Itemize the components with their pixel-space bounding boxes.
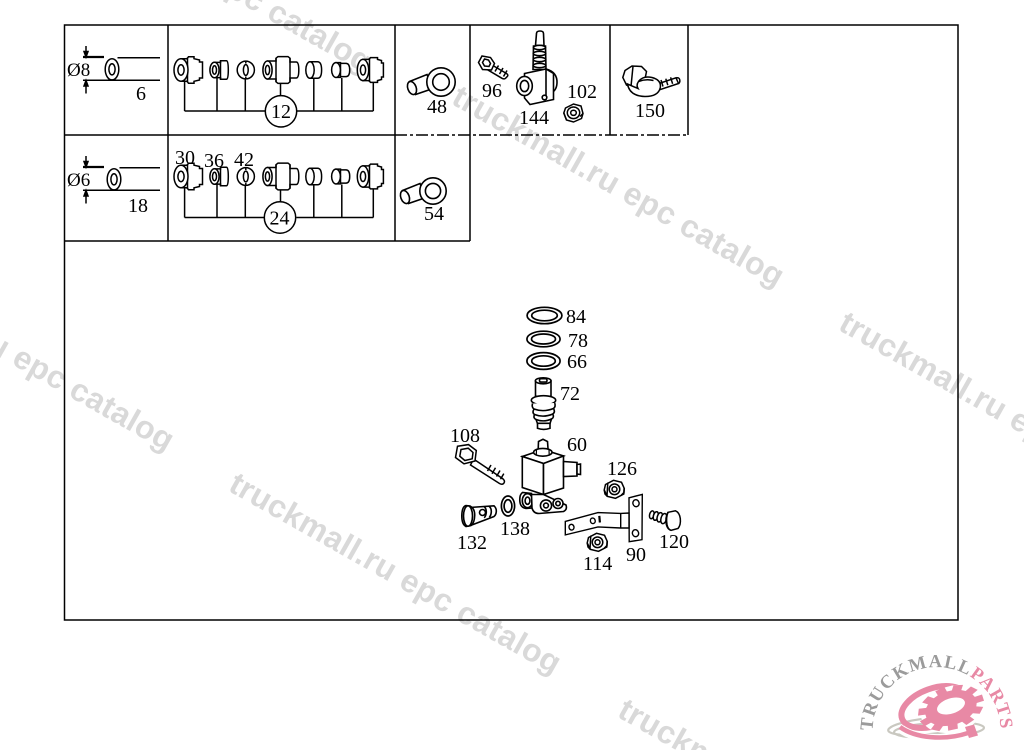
svg-text:6: 6	[136, 83, 146, 105]
svg-text:30: 30	[175, 147, 195, 169]
svg-text:Ø8: Ø8	[67, 60, 90, 81]
svg-text:120: 120	[659, 531, 689, 553]
svg-text:66: 66	[567, 351, 587, 373]
svg-text:90: 90	[626, 544, 646, 566]
svg-text:truckmall.ru epc catalog: truckmall.ru epc catalog	[834, 304, 1024, 520]
svg-text:144: 144	[519, 107, 549, 129]
svg-text:truckmall.ru epc catalog: truckmall.ru epc catalog	[224, 465, 568, 681]
svg-text:24: 24	[270, 208, 290, 230]
svg-text:36: 36	[204, 150, 224, 172]
svg-text:truckmall.ru epc catalog: truckmall.ru epc catalog	[447, 78, 791, 294]
svg-text:126: 126	[607, 458, 637, 480]
svg-text:150: 150	[635, 100, 665, 122]
svg-text:54: 54	[424, 203, 444, 225]
svg-text:12: 12	[271, 101, 291, 123]
svg-text:138: 138	[500, 518, 530, 540]
svg-text:Ø6: Ø6	[67, 170, 90, 191]
svg-text:132: 132	[457, 532, 487, 554]
svg-text:84: 84	[566, 306, 586, 328]
svg-text:96: 96	[482, 80, 502, 102]
svg-text:78: 78	[568, 330, 588, 352]
svg-text:42: 42	[234, 149, 254, 171]
svg-text:truckmall.ru epc catalog: truckmall.ru epc catalog	[0, 242, 181, 458]
svg-text:18: 18	[128, 195, 148, 217]
svg-text:102: 102	[567, 81, 597, 103]
svg-text:108: 108	[450, 425, 480, 447]
svg-text:60: 60	[567, 434, 587, 456]
svg-text:48: 48	[427, 96, 447, 118]
svg-text:114: 114	[583, 553, 612, 575]
svg-text:72: 72	[560, 383, 580, 405]
